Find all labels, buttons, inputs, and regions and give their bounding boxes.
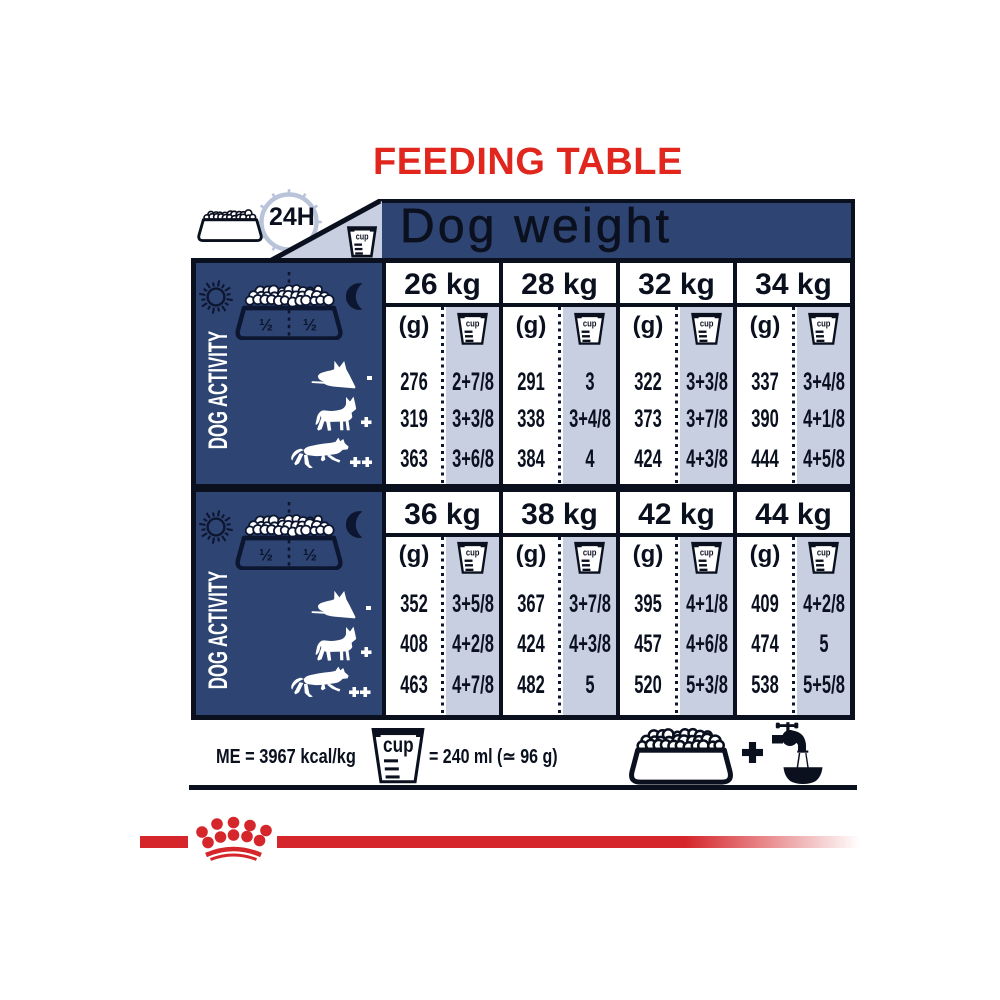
svg-text:cup: cup (700, 318, 714, 329)
svg-text:cup: cup (700, 547, 714, 558)
svg-text:½: ½ (259, 546, 273, 565)
svg-text:cup: cup (583, 318, 597, 329)
svg-text:cup: cup (583, 547, 597, 558)
svg-text:cup: cup (817, 318, 831, 329)
svg-text:cup: cup (466, 547, 480, 558)
svg-text:½: ½ (259, 316, 273, 335)
svg-text:cup: cup (466, 318, 480, 329)
svg-text:cup: cup (356, 232, 369, 242)
svg-text:cup: cup (817, 547, 831, 558)
svg-text:½: ½ (303, 316, 317, 335)
svg-text:½: ½ (303, 546, 317, 565)
svg-text:cup: cup (383, 734, 414, 757)
